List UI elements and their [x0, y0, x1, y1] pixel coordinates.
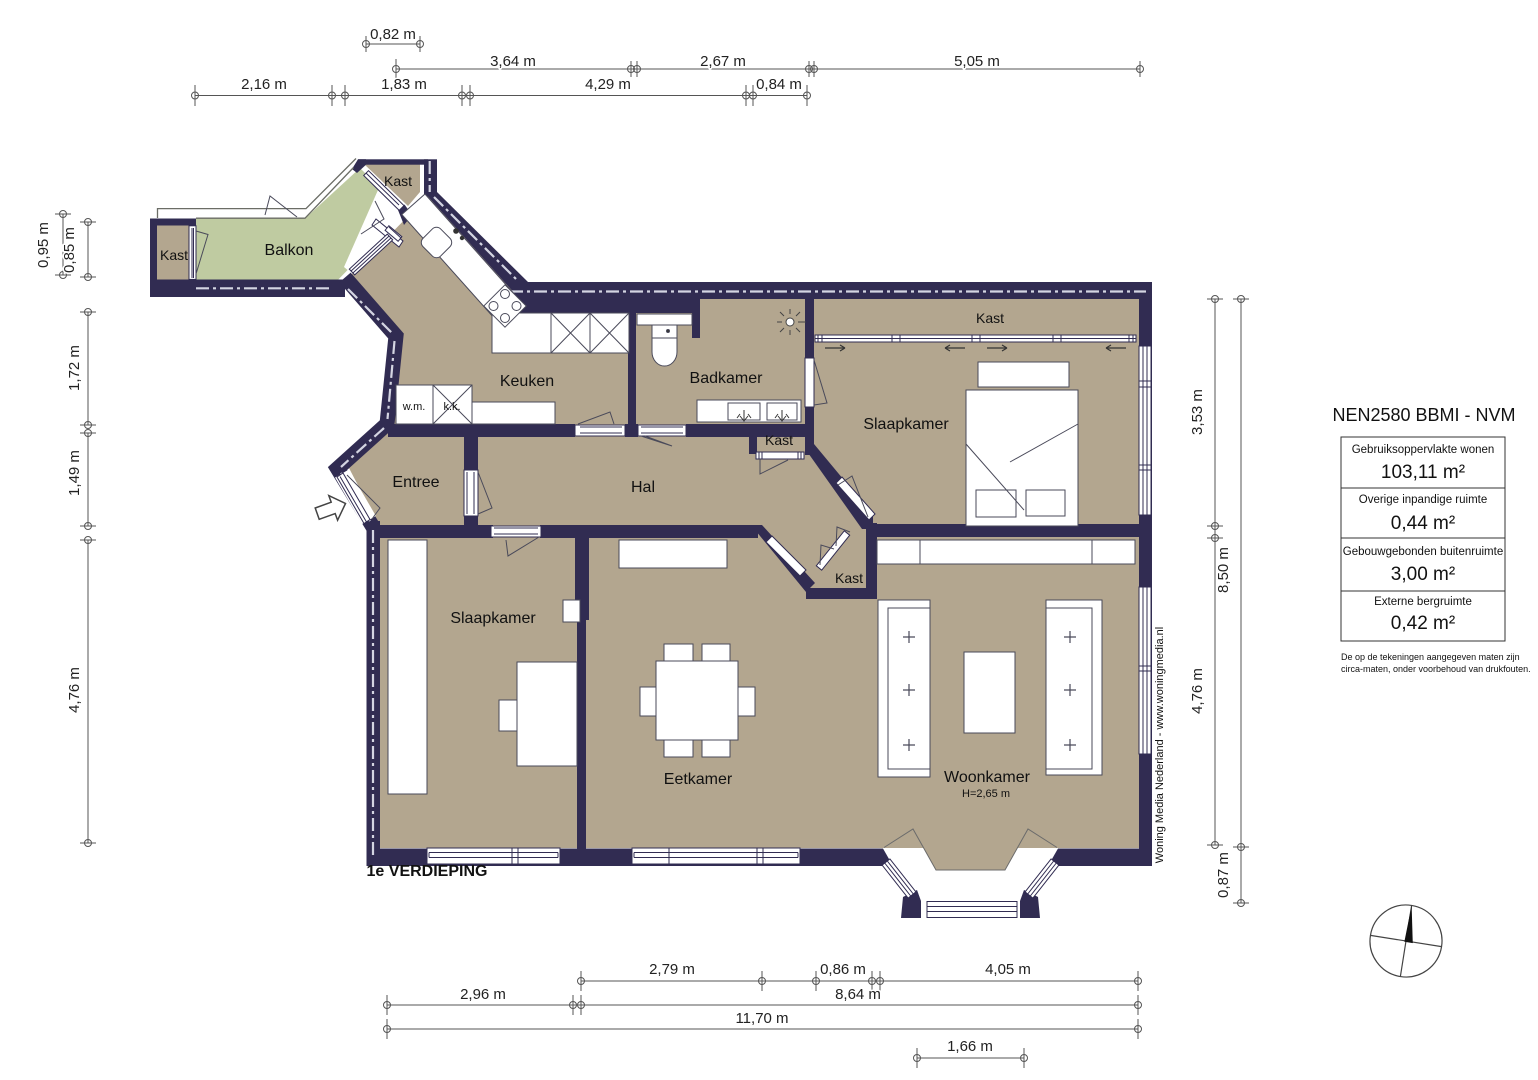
svg-text:Overige inpandige ruimte: Overige inpandige ruimte — [1359, 494, 1488, 506]
svg-text:8,50 m: 8,50 m — [1215, 547, 1232, 593]
svg-text:1e VERDIEPING: 1e VERDIEPING — [367, 863, 488, 880]
svg-text:0,44 m²: 0,44 m² — [1391, 513, 1455, 534]
svg-text:0,95 m: 0,95 m — [35, 222, 52, 268]
svg-text:Kast: Kast — [160, 247, 188, 263]
svg-text:Externe bergruimte: Externe bergruimte — [1374, 596, 1472, 608]
svg-text:1,83 m: 1,83 m — [381, 76, 427, 93]
svg-text:Kast: Kast — [765, 432, 793, 448]
svg-text:0,87 m: 0,87 m — [1215, 852, 1232, 898]
svg-text:Slaapkamer: Slaapkamer — [863, 416, 949, 433]
svg-text:2,67 m: 2,67 m — [700, 53, 746, 70]
svg-text:2,96 m: 2,96 m — [460, 986, 506, 1003]
svg-text:2,79 m: 2,79 m — [649, 961, 695, 978]
svg-text:0,42 m²: 0,42 m² — [1391, 613, 1455, 634]
svg-text:Keuken: Keuken — [500, 373, 554, 390]
svg-text:8,64 m: 8,64 m — [835, 986, 881, 1003]
svg-text:0,85 m: 0,85 m — [61, 227, 78, 273]
svg-text:3,64 m: 3,64 m — [490, 53, 536, 70]
svg-text:H=2,65 m: H=2,65 m — [962, 788, 1010, 800]
svg-text:0,86 m: 0,86 m — [820, 961, 866, 978]
svg-text:1,72 m: 1,72 m — [66, 345, 83, 391]
svg-text:Woning Media Nederland - www.w: Woning Media Nederland - www.woningmedia… — [1154, 627, 1166, 863]
svg-text:w.m.: w.m. — [402, 401, 426, 413]
svg-text:NEN2580 BBMI - NVM: NEN2580 BBMI - NVM — [1332, 405, 1515, 425]
svg-text:1,66 m: 1,66 m — [947, 1038, 993, 1055]
svg-text:4,29 m: 4,29 m — [585, 76, 631, 93]
svg-text:3,00 m²: 3,00 m² — [1391, 564, 1455, 585]
svg-text:k.k.: k.k. — [443, 401, 460, 413]
svg-text:Entree: Entree — [392, 474, 439, 491]
svg-text:Badkamer: Badkamer — [690, 370, 764, 387]
svg-text:0,84 m: 0,84 m — [756, 76, 802, 93]
svg-text:Gebruiksoppervlakte wonen: Gebruiksoppervlakte wonen — [1352, 444, 1495, 456]
svg-text:4,05 m: 4,05 m — [985, 961, 1031, 978]
svg-text:De op de tekeningen aangegeven: De op de tekeningen aangegeven maten zij… — [1341, 652, 1520, 662]
svg-text:11,70 m: 11,70 m — [735, 1010, 788, 1027]
svg-text:Kast: Kast — [976, 310, 1004, 326]
svg-text:0,82 m: 0,82 m — [370, 26, 416, 43]
svg-text:Eetkamer: Eetkamer — [664, 771, 733, 788]
svg-text:103,11 m²: 103,11 m² — [1381, 462, 1465, 483]
svg-text:Kast: Kast — [835, 570, 863, 586]
svg-text:4,76 m: 4,76 m — [1189, 668, 1206, 714]
svg-text:Balkon: Balkon — [265, 242, 314, 259]
svg-text:circa-maten, onder voorbehoud: circa-maten, onder voorbehoud van drukfo… — [1341, 664, 1531, 674]
svg-text:4,76 m: 4,76 m — [66, 667, 83, 713]
svg-text:Slaapkamer: Slaapkamer — [450, 610, 536, 627]
svg-text:Hal: Hal — [631, 479, 655, 496]
svg-text:Kast: Kast — [384, 173, 412, 189]
svg-text:1,49 m: 1,49 m — [66, 450, 83, 496]
svg-text:Gebouwgebonden buitenruimte: Gebouwgebonden buitenruimte — [1343, 546, 1503, 558]
svg-text:Woonkamer: Woonkamer — [944, 769, 1031, 786]
svg-text:5,05 m: 5,05 m — [954, 53, 1000, 70]
svg-text:2,16 m: 2,16 m — [241, 76, 287, 93]
svg-text:3,53 m: 3,53 m — [1189, 389, 1206, 435]
